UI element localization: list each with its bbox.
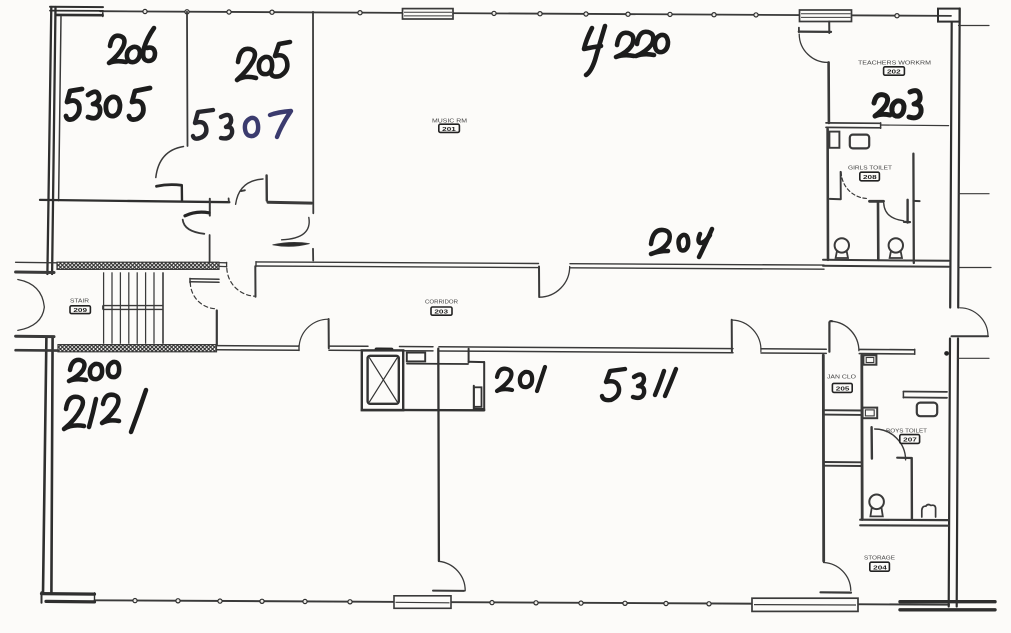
svg-text:202: 202 <box>887 69 901 75</box>
svg-text:STORAGE: STORAGE <box>864 556 895 562</box>
svg-text:TEACHERS WORKRM: TEACHERS WORKRM <box>858 61 932 67</box>
svg-text:207: 207 <box>903 438 917 444</box>
svg-text:209: 209 <box>73 308 87 314</box>
svg-text:201: 201 <box>442 127 456 133</box>
svg-text:GIRLS TOILET: GIRLS TOILET <box>848 166 893 172</box>
svg-text:CORRIDOR: CORRIDOR <box>425 300 458 306</box>
svg-text:JAN CLO: JAN CLO <box>827 375 856 381</box>
svg-text:204: 204 <box>873 565 887 571</box>
svg-text:208: 208 <box>863 175 877 181</box>
svg-text:STAIR: STAIR <box>70 299 89 305</box>
svg-text:BOYS TOILET: BOYS TOILET <box>886 429 928 435</box>
svg-text:205: 205 <box>836 386 850 392</box>
svg-text:203: 203 <box>434 310 448 316</box>
